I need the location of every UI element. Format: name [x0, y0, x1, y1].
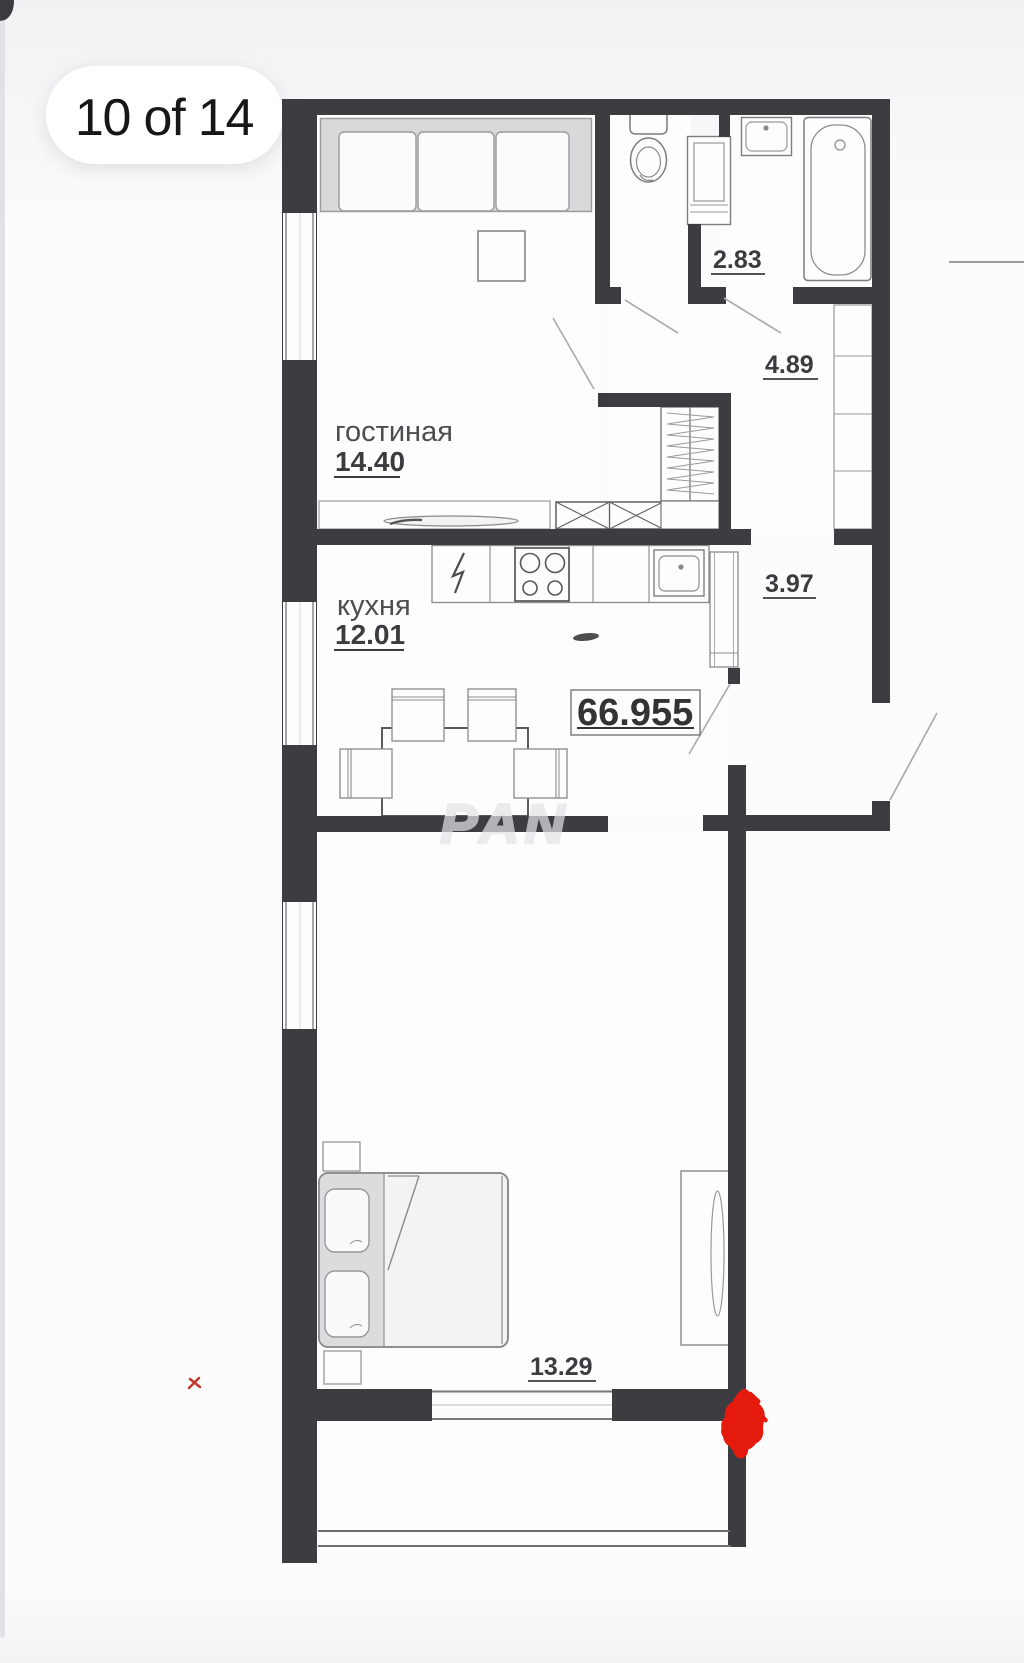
svg-text:13.29: 13.29 — [530, 1353, 593, 1381]
svg-text:14.40: 14.40 — [335, 446, 405, 477]
svg-text:10 of 14: 10 of 14 — [75, 89, 254, 147]
svg-text:гостиная: гостиная — [335, 416, 453, 448]
svg-text:2.83: 2.83 — [713, 246, 762, 274]
svg-text:12.01: 12.01 — [335, 619, 405, 650]
svg-text:3.97: 3.97 — [765, 570, 814, 598]
svg-text:кухня: кухня — [337, 590, 411, 622]
svg-text:4.89: 4.89 — [765, 351, 814, 379]
